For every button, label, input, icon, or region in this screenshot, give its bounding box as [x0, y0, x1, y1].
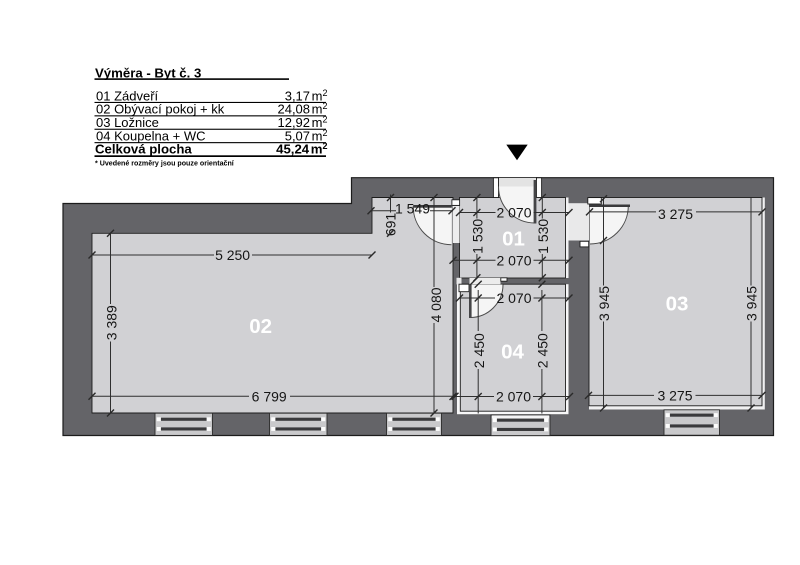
svg-text:45,24m2: 45,24m2: [276, 141, 327, 157]
svg-text:2 070: 2 070: [496, 205, 531, 221]
svg-text:3 275: 3 275: [657, 388, 692, 404]
svg-text:03: 03: [666, 293, 689, 316]
svg-text:3 389: 3 389: [104, 305, 120, 340]
svg-text:Celková plocha: Celková plocha: [95, 142, 192, 157]
svg-text:* Uvedené rozměry jsou pouze o: * Uvedené rozměry jsou pouze orientační: [95, 159, 235, 167]
svg-text:4 080: 4 080: [428, 287, 444, 322]
svg-text:1 530: 1 530: [470, 219, 486, 254]
svg-text:02: 02: [249, 315, 272, 338]
svg-text:Výměra - Byt č. 3: Výměra - Byt č. 3: [95, 66, 201, 81]
svg-text:5 250: 5 250: [215, 247, 250, 263]
svg-text:2 070: 2 070: [496, 252, 531, 268]
svg-text:3 945: 3 945: [596, 286, 612, 321]
svg-text:2 070: 2 070: [496, 389, 531, 405]
svg-text:2 450: 2 450: [535, 333, 551, 368]
svg-text:1 530: 1 530: [535, 219, 551, 254]
svg-text:1 549: 1 549: [395, 201, 430, 217]
svg-text:04: 04: [501, 341, 524, 364]
svg-text:3 275: 3 275: [658, 206, 693, 222]
svg-text:2 450: 2 450: [471, 333, 487, 368]
svg-text:3 945: 3 945: [744, 286, 760, 321]
svg-text:01: 01: [502, 228, 525, 251]
svg-text:6 799: 6 799: [252, 388, 287, 404]
svg-text:2 070: 2 070: [496, 290, 531, 306]
